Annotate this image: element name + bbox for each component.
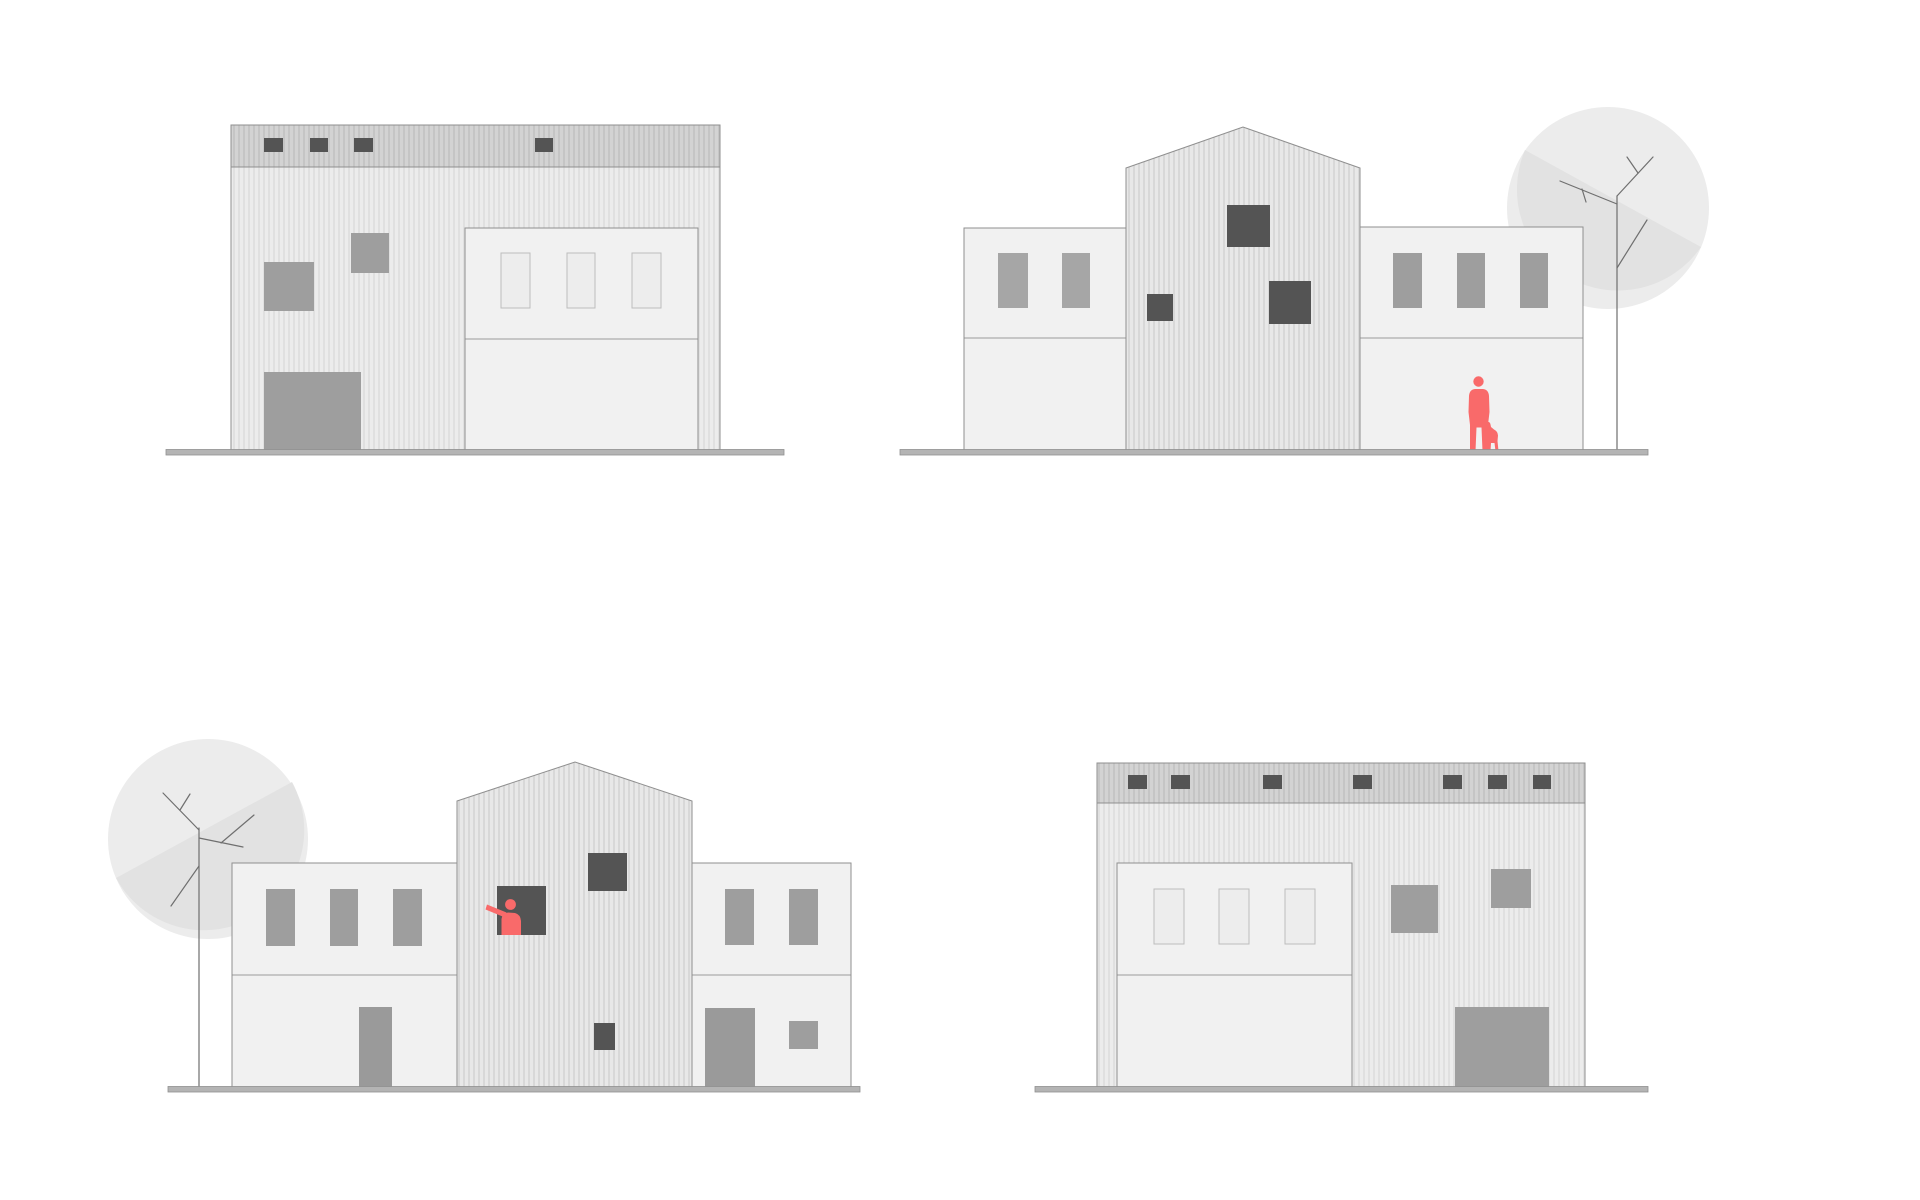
wall-window bbox=[725, 889, 754, 945]
building-top-left bbox=[231, 125, 720, 451]
wall-window bbox=[351, 233, 389, 273]
clerestory-band bbox=[1097, 763, 1585, 803]
left-wing bbox=[964, 228, 1126, 451]
clerestory-window bbox=[1488, 775, 1507, 789]
clerestory-window bbox=[1263, 775, 1282, 789]
gable-window bbox=[588, 853, 627, 891]
clerestory-window bbox=[1171, 775, 1190, 789]
gable-window bbox=[594, 1023, 615, 1050]
clerestory-window bbox=[1533, 775, 1551, 789]
gable-window bbox=[1227, 205, 1270, 247]
wall-window bbox=[998, 253, 1028, 308]
wall-window bbox=[1491, 869, 1531, 908]
wall-window bbox=[1062, 253, 1090, 308]
panel-window bbox=[632, 253, 661, 308]
wall-window bbox=[1391, 885, 1438, 933]
clerestory-window bbox=[535, 138, 553, 152]
wall-window bbox=[393, 889, 422, 946]
panel-window bbox=[567, 253, 595, 308]
illustration-canvas bbox=[0, 0, 1920, 1200]
garage-door bbox=[264, 372, 361, 451]
building-bottom-left bbox=[232, 762, 851, 1087]
garage-door bbox=[1455, 1007, 1549, 1087]
person-head bbox=[1473, 376, 1483, 386]
clerestory-window bbox=[310, 138, 328, 152]
wall-window bbox=[264, 262, 314, 311]
gable-hall bbox=[457, 762, 692, 1087]
clerestory-window bbox=[264, 138, 283, 152]
wall-window bbox=[1393, 253, 1422, 308]
ground-line bbox=[166, 450, 784, 456]
building-top-right bbox=[964, 127, 1583, 451]
gable-window bbox=[1147, 294, 1173, 321]
entry-door bbox=[359, 1007, 392, 1087]
wall-window bbox=[266, 889, 295, 946]
ground-line bbox=[168, 1087, 860, 1093]
clerestory-window bbox=[1353, 775, 1372, 789]
panel-window bbox=[1285, 889, 1315, 944]
wall-window bbox=[789, 1021, 818, 1049]
wall-window bbox=[330, 889, 358, 946]
clerestory-window bbox=[1128, 775, 1147, 789]
panel-window bbox=[1154, 889, 1184, 944]
clerestory-window bbox=[1443, 775, 1462, 789]
entry-door bbox=[705, 1008, 755, 1087]
building-bottom-right bbox=[1097, 763, 1585, 1087]
clerestory-window bbox=[354, 138, 373, 152]
panel-window bbox=[501, 253, 530, 308]
wall-window bbox=[1457, 253, 1485, 308]
gable-hall bbox=[1126, 127, 1360, 451]
clerestory-band bbox=[231, 125, 720, 167]
ground-line bbox=[1035, 1087, 1648, 1093]
panel-window bbox=[1219, 889, 1249, 944]
wall-window bbox=[789, 889, 818, 945]
wall-window bbox=[1520, 253, 1548, 308]
person-head bbox=[505, 899, 516, 910]
elevations-illustration bbox=[0, 0, 1920, 1200]
gable-window bbox=[1269, 281, 1311, 324]
ground-line bbox=[900, 450, 1648, 456]
